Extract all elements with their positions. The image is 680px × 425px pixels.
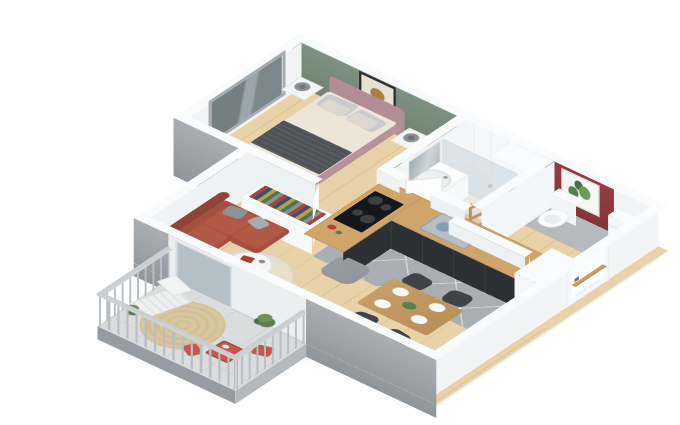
floor-plan-scene (0, 0, 680, 425)
